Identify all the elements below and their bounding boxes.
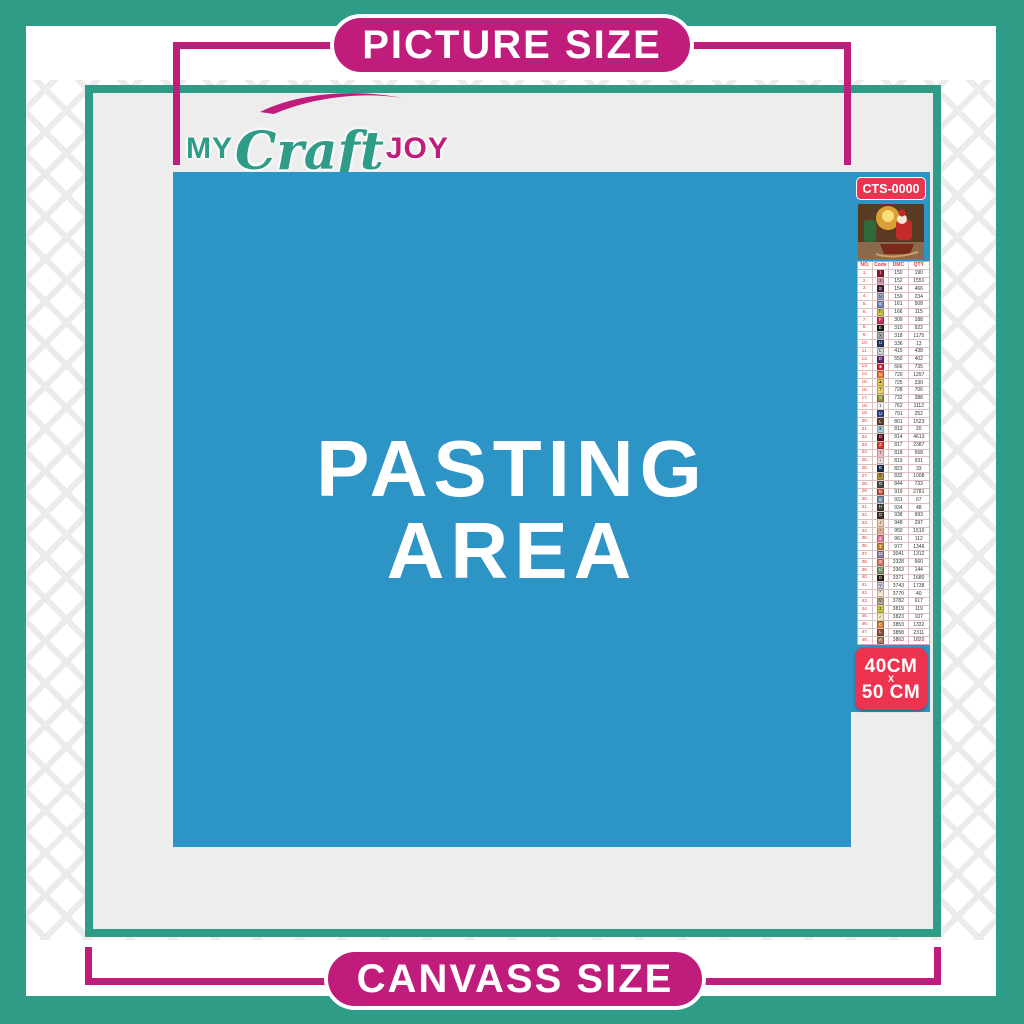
cell-dmc: 161 (888, 301, 907, 308)
cell-code: O (872, 575, 889, 582)
cell-dmc: 931 (888, 496, 907, 503)
picture-bracket-drop-left (173, 42, 180, 165)
table-header-row: NO. Code DMC QTY (858, 262, 929, 269)
cell-no: 29. (858, 489, 872, 496)
color-symbol-swatch: M (877, 489, 885, 496)
legend-column: CTS-0000 NO. Code DMC QTY (851, 172, 930, 712)
color-symbol-swatch: + (877, 457, 885, 464)
cell-dmc: 3819 (888, 606, 907, 613)
cell-qty: 188 (908, 317, 929, 324)
cell-qty: 4613 (908, 434, 929, 441)
cell-qty: 1820 (908, 637, 929, 644)
cell-no: 30. (858, 496, 872, 503)
color-symbol-swatch: L (877, 348, 885, 355)
cell-code: X (872, 332, 889, 339)
cell-no: 34. (858, 528, 872, 535)
table-row: 21.⊕81320 (858, 425, 929, 433)
cell-dmc: 725 (888, 379, 907, 386)
table-row: 43.V3782617 (858, 597, 929, 605)
cell-dmc: 3041 (888, 551, 907, 558)
color-symbol-swatch: X (877, 332, 885, 339)
cell-qty: 2387 (908, 442, 929, 449)
cell-no: 6. (858, 309, 872, 316)
cell-dmc: 818 (888, 450, 907, 457)
canvass-size-label: CANVASS SIZE (357, 957, 674, 1002)
color-symbol-swatch: L (877, 418, 885, 425)
cell-no: 10. (858, 340, 872, 347)
color-symbol-swatch: 7 (877, 387, 885, 394)
table-row: 17.S732388 (858, 394, 929, 402)
cell-code: N (872, 371, 889, 378)
table-row: 11.L415438 (858, 347, 929, 355)
cell-dmc: 3743 (888, 582, 907, 589)
cell-no: 32. (858, 512, 872, 519)
color-symbol-swatch: O (877, 512, 885, 519)
cell-code: G (872, 301, 889, 308)
cell-dmc: 817 (888, 442, 907, 449)
cell-code: Z (872, 442, 889, 449)
color-symbol-swatch: S (877, 285, 885, 292)
cell-no: 16. (858, 387, 872, 394)
logo-text-craft: Craft (235, 129, 384, 176)
cell-qty: 931 (908, 457, 929, 464)
picture-size-banner: PICTURE SIZE (330, 14, 694, 76)
cell-qty: 922 (908, 325, 929, 332)
table-row: 34.*9501510 (858, 527, 929, 535)
sku-badge: CTS-0000 (856, 177, 926, 200)
picture-bracket-drop-right (844, 42, 851, 165)
cell-no: 5. (858, 301, 872, 308)
cell-dmc: 3371 (888, 575, 907, 582)
cell-dmc: 3853 (888, 621, 907, 628)
color-symbol-swatch: ■ (877, 364, 885, 371)
cell-code: ⊕ (872, 426, 889, 433)
cell-dmc: 3782 (888, 598, 907, 605)
cell-dmc: 948 (888, 520, 907, 527)
cell-no: 35. (858, 535, 872, 542)
table-row: 41.Y37431738 (858, 581, 929, 589)
cell-dmc: 154 (888, 285, 907, 292)
cell-qty: 1008 (908, 473, 929, 480)
cell-code: ✓ (872, 614, 889, 621)
cell-qty: 388 (908, 395, 929, 402)
table-row: 45.✓3823107 (858, 613, 929, 621)
cell-no: 36. (858, 543, 872, 550)
cell-no: 44. (858, 606, 872, 613)
cell-qty: 1738 (908, 582, 929, 589)
cell-no: 37. (858, 551, 872, 558)
color-symbol-swatch: S (877, 395, 885, 402)
table-row: 24.7818568 (858, 449, 929, 457)
cell-no: 31. (858, 504, 872, 511)
cell-dmc: 832 (888, 473, 907, 480)
table-row: 31.H93448 (858, 503, 929, 511)
color-symbol-swatch: 2 (877, 606, 885, 613)
table-row: 47.L38582311 (858, 628, 929, 636)
cell-dmc: 166 (888, 309, 907, 316)
canvass-bracket-rise-right (934, 947, 941, 985)
cell-dmc: 801 (888, 418, 907, 425)
cell-no: 18. (858, 403, 872, 410)
header-qty: QTY (908, 262, 929, 269)
cell-qty: 112 (908, 535, 929, 542)
table-row: 27.88321008 (858, 472, 929, 480)
page-background: PICTURE SIZE CANVASS SIZE MY Craft JOY P… (0, 0, 1024, 1024)
color-symbol-swatch: E (877, 325, 885, 332)
cell-qty: 1312 (908, 551, 929, 558)
table-row: 26.B82333 (858, 464, 929, 472)
table-row: 46.C38531332 (858, 620, 929, 628)
cell-dmc: 150 (888, 270, 907, 277)
logo-text-joy: JOY (386, 134, 449, 170)
cell-no: 39. (858, 567, 872, 574)
color-symbol-swatch: ⊕ (877, 426, 885, 433)
cell-qty: 33 (908, 465, 929, 472)
cell-code: 7 (872, 387, 889, 394)
table-row: 40.O33711680 (858, 574, 929, 582)
cell-qty: 119 (908, 606, 929, 613)
cell-no: 11. (858, 348, 872, 355)
color-symbol-swatch: O (877, 481, 885, 488)
cell-code: S (872, 285, 889, 292)
table-row: 22.O8144613 (858, 433, 929, 441)
color-symbol-swatch: ✓ (877, 614, 885, 621)
cell-qty: 1346 (908, 543, 929, 550)
cell-no: 40. (858, 575, 872, 582)
cell-dmc: 844 (888, 481, 907, 488)
cell-no: 15. (858, 379, 872, 386)
cell-dmc: 813 (888, 426, 907, 433)
cell-dmc: 3863 (888, 637, 907, 644)
table-row: 48.A38631820 (858, 636, 929, 644)
color-code-table: NO. Code DMC QTY 1.t1501902.315215513.S1… (857, 261, 930, 645)
cell-qty: 1112 (908, 403, 929, 410)
table-row: 20.L8011523 (858, 417, 929, 425)
cell-code: T (872, 543, 889, 550)
cell-qty: 67 (908, 496, 929, 503)
cell-qty: 234 (908, 293, 929, 300)
cell-code: A (872, 637, 889, 644)
cell-qty: 660 (908, 559, 929, 566)
cell-dmc: 336 (888, 340, 907, 347)
table-row: 2.31521551 (858, 277, 929, 285)
cell-code: 8 (872, 473, 889, 480)
color-symbol-swatch: h (877, 309, 885, 316)
picture-size-label: PICTURE SIZE (362, 23, 662, 68)
cell-code: 4 (872, 535, 889, 542)
table-row: 16.7728706 (858, 386, 929, 394)
color-symbol-swatch: t (877, 270, 885, 277)
cell-no: 7. (858, 317, 872, 324)
cell-code: L (872, 348, 889, 355)
cell-no: 8. (858, 325, 872, 332)
cell-qty: 733 (908, 481, 929, 488)
color-symbol-swatch: ^ (877, 590, 885, 597)
cell-dmc: 3858 (888, 629, 907, 636)
cell-no: 17. (858, 395, 872, 402)
color-symbol-swatch: T (877, 543, 885, 550)
cell-code: Y (872, 582, 889, 589)
cell-dmc: 919 (888, 489, 907, 496)
table-row: 19.U791252 (858, 409, 929, 417)
cell-no: 23. (858, 442, 872, 449)
color-symbol-swatch: C (877, 621, 885, 628)
cell-no: 12. (858, 356, 872, 363)
cell-qty: 508 (908, 301, 929, 308)
table-row: 4.N159234 (858, 292, 929, 300)
color-symbol-swatch: 12 (877, 551, 885, 558)
cell-code: + (872, 457, 889, 464)
cell-dmc: 720 (888, 371, 907, 378)
color-symbol-swatch: L (877, 629, 885, 636)
cell-qty: 1523 (908, 418, 929, 425)
cell-qty: 402 (908, 356, 929, 363)
cell-code: B (872, 465, 889, 472)
table-row: 9.X3181175 (858, 331, 929, 339)
cell-dmc: 977 (888, 543, 907, 550)
cell-code: L (872, 418, 889, 425)
cell-qty: 144 (908, 567, 929, 574)
table-row: 33.J948297 (858, 519, 929, 527)
color-symbol-swatch: G (877, 301, 885, 308)
cell-qty: 2311 (908, 629, 929, 636)
pasting-area: PASTING AREA (173, 172, 851, 847)
cell-qty: 190 (908, 270, 929, 277)
cell-no: 9. (858, 332, 872, 339)
cell-no: 4. (858, 293, 872, 300)
cell-no: 46. (858, 621, 872, 628)
table-row: 5.G161508 (858, 300, 929, 308)
color-symbol-swatch: 4 (877, 535, 885, 542)
cell-qty: 568 (908, 450, 929, 457)
cell-code: * (872, 528, 889, 535)
cell-qty: 1680 (908, 575, 929, 582)
color-symbol-swatch: 1 (877, 403, 885, 410)
table-row: 15.▲725330 (858, 378, 929, 386)
table-row: 8.E310922 (858, 324, 929, 332)
cell-no: 41. (858, 582, 872, 589)
table-row: 7.F309188 (858, 316, 929, 324)
cell-dmc: 415 (888, 348, 907, 355)
cell-dmc: 728 (888, 387, 907, 394)
cell-dmc: 666 (888, 364, 907, 371)
size-badge: 40CM X 50 CM (855, 648, 927, 710)
color-symbol-swatch: 7 (877, 450, 885, 457)
cell-no: 19. (858, 410, 872, 417)
cell-no: 21. (858, 426, 872, 433)
color-symbol-swatch: A (877, 637, 885, 644)
cell-qty: 297 (908, 520, 929, 527)
table-row: 39.U3363144 (858, 566, 929, 574)
cell-no: 26. (858, 465, 872, 472)
color-symbol-swatch: O (877, 575, 885, 582)
cell-qty: 1332 (908, 621, 929, 628)
picture-bracket-line-right (690, 42, 851, 49)
table-row: 35.4961112 (858, 534, 929, 542)
cell-qty: 48 (908, 504, 929, 511)
cell-code: M (872, 489, 889, 496)
cell-code: F (872, 317, 889, 324)
color-symbol-swatch: 3 (877, 278, 885, 285)
color-symbol-swatch: U (877, 340, 885, 347)
canvass-bracket-line-right (700, 978, 941, 985)
cell-code: h (872, 309, 889, 316)
cell-qty: 252 (908, 410, 929, 417)
pasting-area-line2: AREA (387, 510, 638, 592)
color-symbol-swatch: H (877, 504, 885, 511)
cell-qty: 1297 (908, 371, 929, 378)
cell-code: S (872, 395, 889, 402)
cell-no: 28. (858, 481, 872, 488)
cell-code: N (872, 293, 889, 300)
cell-no: 22. (858, 434, 872, 441)
table-row: 23.Z8172387 (858, 441, 929, 449)
cell-dmc: 310 (888, 325, 907, 332)
cell-no: 2. (858, 278, 872, 285)
cell-code: 7 (872, 450, 889, 457)
cell-code: ^ (872, 590, 889, 597)
cell-code: V (872, 598, 889, 605)
header-code: Code (872, 262, 889, 269)
cell-code: U (872, 567, 889, 574)
cell-code: 12 (872, 551, 889, 558)
color-symbol-swatch: J (877, 520, 885, 527)
cell-no: 45. (858, 614, 872, 621)
cell-code: O (872, 512, 889, 519)
color-symbol-swatch: D (877, 356, 885, 363)
cell-qty: 40 (908, 590, 929, 597)
table-row: 44.23819119 (858, 605, 929, 613)
cell-dmc: 791 (888, 410, 907, 417)
cell-code: 5 (872, 496, 889, 503)
cell-code: 2 (872, 606, 889, 613)
table-row: 13.■666735 (858, 363, 929, 371)
color-symbol-swatch: N (877, 293, 885, 300)
cell-no: 20. (858, 418, 872, 425)
cell-dmc: 550 (888, 356, 907, 363)
cell-qty: 466 (908, 285, 929, 292)
cell-qty: 993 (908, 512, 929, 519)
color-symbol-swatch: 8 (877, 473, 885, 480)
color-symbol-swatch: F (877, 317, 885, 324)
table-row: 14.N7201297 (858, 370, 929, 378)
cell-dmc: 950 (888, 528, 907, 535)
cell-dmc: 3328 (888, 559, 907, 566)
cell-dmc: 318 (888, 332, 907, 339)
cell-code: U (872, 340, 889, 347)
cell-no: 42. (858, 590, 872, 597)
cell-no: 24. (858, 450, 872, 457)
cell-code: O (872, 434, 889, 441)
color-symbol-swatch: V (877, 598, 885, 605)
cell-code: ▲ (872, 379, 889, 386)
cell-no: 25. (858, 457, 872, 464)
cell-qty: 706 (908, 387, 929, 394)
color-symbol-swatch: 9 (877, 559, 885, 566)
table-row: 18.17621112 (858, 402, 929, 410)
size-line3: 50 CM (862, 683, 920, 702)
cell-dmc: 152 (888, 278, 907, 285)
cell-code: C (872, 621, 889, 628)
table-row: 10.U33613 (858, 339, 929, 347)
cell-code: O (872, 481, 889, 488)
cell-qty: 1510 (908, 528, 929, 535)
cell-code: H (872, 504, 889, 511)
outer-border-left (0, 0, 26, 1024)
cell-dmc: 3770 (888, 590, 907, 597)
cell-code: 3 (872, 278, 889, 285)
cell-no: 27. (858, 473, 872, 480)
canvass-bracket-line-left (85, 978, 330, 985)
cell-dmc: 3823 (888, 614, 907, 621)
brand-logo: MY Craft JOY (186, 100, 449, 170)
cell-no: 33. (858, 520, 872, 527)
cell-dmc: 961 (888, 535, 907, 542)
table-row: 29.M9192781 (858, 488, 929, 496)
cell-dmc: 934 (888, 504, 907, 511)
header-dmc: DMC (888, 262, 907, 269)
color-symbol-swatch: * (877, 528, 885, 535)
cell-qty: 617 (908, 598, 929, 605)
color-symbol-swatch: N (877, 371, 885, 378)
table-row: 12.D550402 (858, 355, 929, 363)
cell-dmc: 814 (888, 434, 907, 441)
table-row: 6.h166115 (858, 308, 929, 316)
table-row: 42.^377040 (858, 589, 929, 597)
cell-code: 9 (872, 559, 889, 566)
cell-qty: 13 (908, 340, 929, 347)
color-symbol-swatch: 5 (877, 496, 885, 503)
color-symbol-swatch: U (877, 567, 885, 574)
design-preview-image (858, 204, 924, 259)
cell-code: E (872, 325, 889, 332)
cell-code: 1 (872, 403, 889, 410)
cell-dmc: 819 (888, 457, 907, 464)
outer-border-right (996, 0, 1024, 1024)
cell-code: U (872, 410, 889, 417)
picture-bracket-line-left (173, 42, 336, 49)
cell-dmc: 3363 (888, 567, 907, 574)
cell-code: ■ (872, 364, 889, 371)
color-symbol-swatch: B (877, 465, 885, 472)
table-row: 3.S154466 (858, 284, 929, 292)
table-row: 25.+819931 (858, 456, 929, 464)
cell-code: D (872, 356, 889, 363)
cell-qty: 1551 (908, 278, 929, 285)
cell-qty: 438 (908, 348, 929, 355)
cell-no: 13. (858, 364, 872, 371)
logo-text-my: MY (186, 134, 233, 170)
cell-code: t (872, 270, 889, 277)
cell-no: 48. (858, 637, 872, 644)
cell-no: 43. (858, 598, 872, 605)
cell-dmc: 732 (888, 395, 907, 402)
table-row: 37.1230411312 (858, 550, 929, 558)
cell-no: 47. (858, 629, 872, 636)
table-row: 30.593167 (858, 495, 929, 503)
color-symbol-swatch: ▲ (877, 379, 885, 386)
color-symbol-swatch: O (877, 434, 885, 441)
table-row: 36.T9771346 (858, 542, 929, 550)
cell-dmc: 938 (888, 512, 907, 519)
table-row: 32.O938993 (858, 511, 929, 519)
pasting-area-line1: PASTING (316, 428, 708, 510)
cell-qty: 20 (908, 426, 929, 433)
cell-qty: 735 (908, 364, 929, 371)
cell-qty: 107 (908, 614, 929, 621)
cell-no: 38. (858, 559, 872, 566)
cell-dmc: 762 (888, 403, 907, 410)
